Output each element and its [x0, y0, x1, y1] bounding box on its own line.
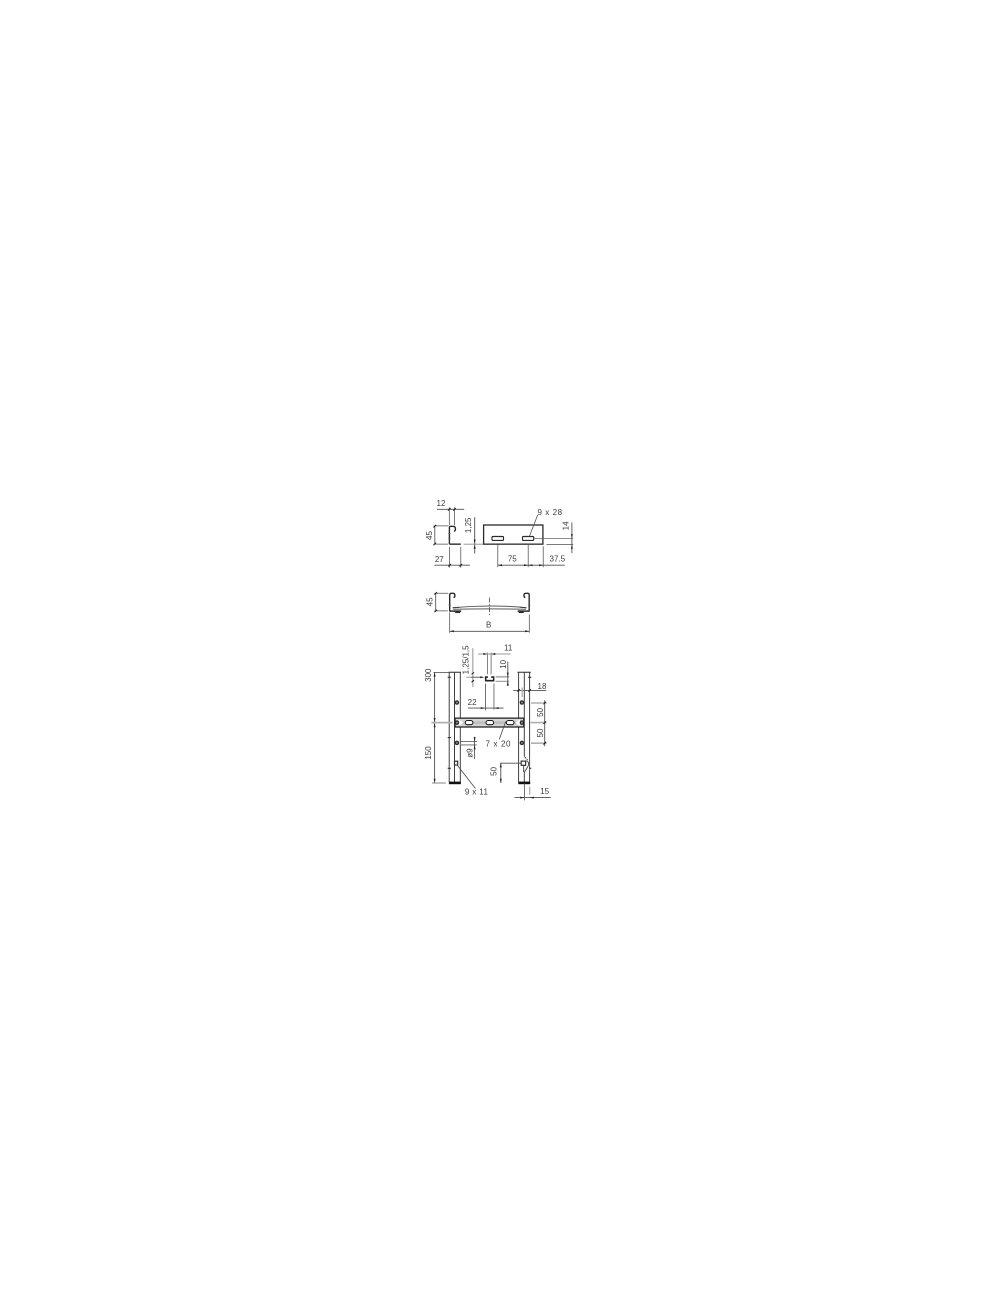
svg-text:12: 12	[437, 499, 446, 508]
svg-text:27: 27	[435, 555, 444, 564]
svg-text:15: 15	[540, 787, 549, 796]
svg-text:75: 75	[508, 554, 517, 563]
svg-text:9 x 28: 9 x 28	[538, 508, 563, 517]
svg-text:11: 11	[504, 643, 513, 652]
svg-text:45: 45	[426, 597, 435, 606]
svg-text:1,25: 1,25	[464, 517, 473, 533]
svg-text:7 x 20: 7 x 20	[486, 740, 512, 749]
svg-text:1,25/1,5: 1,25/1,5	[461, 645, 470, 674]
svg-text:300: 300	[424, 668, 433, 682]
svg-text:50: 50	[536, 707, 545, 716]
svg-text:18: 18	[538, 682, 547, 691]
svg-text:150: 150	[424, 746, 433, 760]
svg-text:14: 14	[562, 521, 571, 530]
svg-text:9 x 11: 9 x 11	[465, 788, 489, 797]
svg-text:ø9: ø9	[466, 748, 475, 758]
svg-text:B: B	[486, 621, 491, 630]
svg-text:22: 22	[468, 698, 477, 707]
svg-text:37.5: 37.5	[550, 554, 566, 563]
svg-text:10: 10	[499, 659, 508, 668]
svg-text:50: 50	[489, 766, 498, 775]
svg-text:45: 45	[425, 531, 434, 540]
svg-text:50: 50	[536, 728, 545, 737]
